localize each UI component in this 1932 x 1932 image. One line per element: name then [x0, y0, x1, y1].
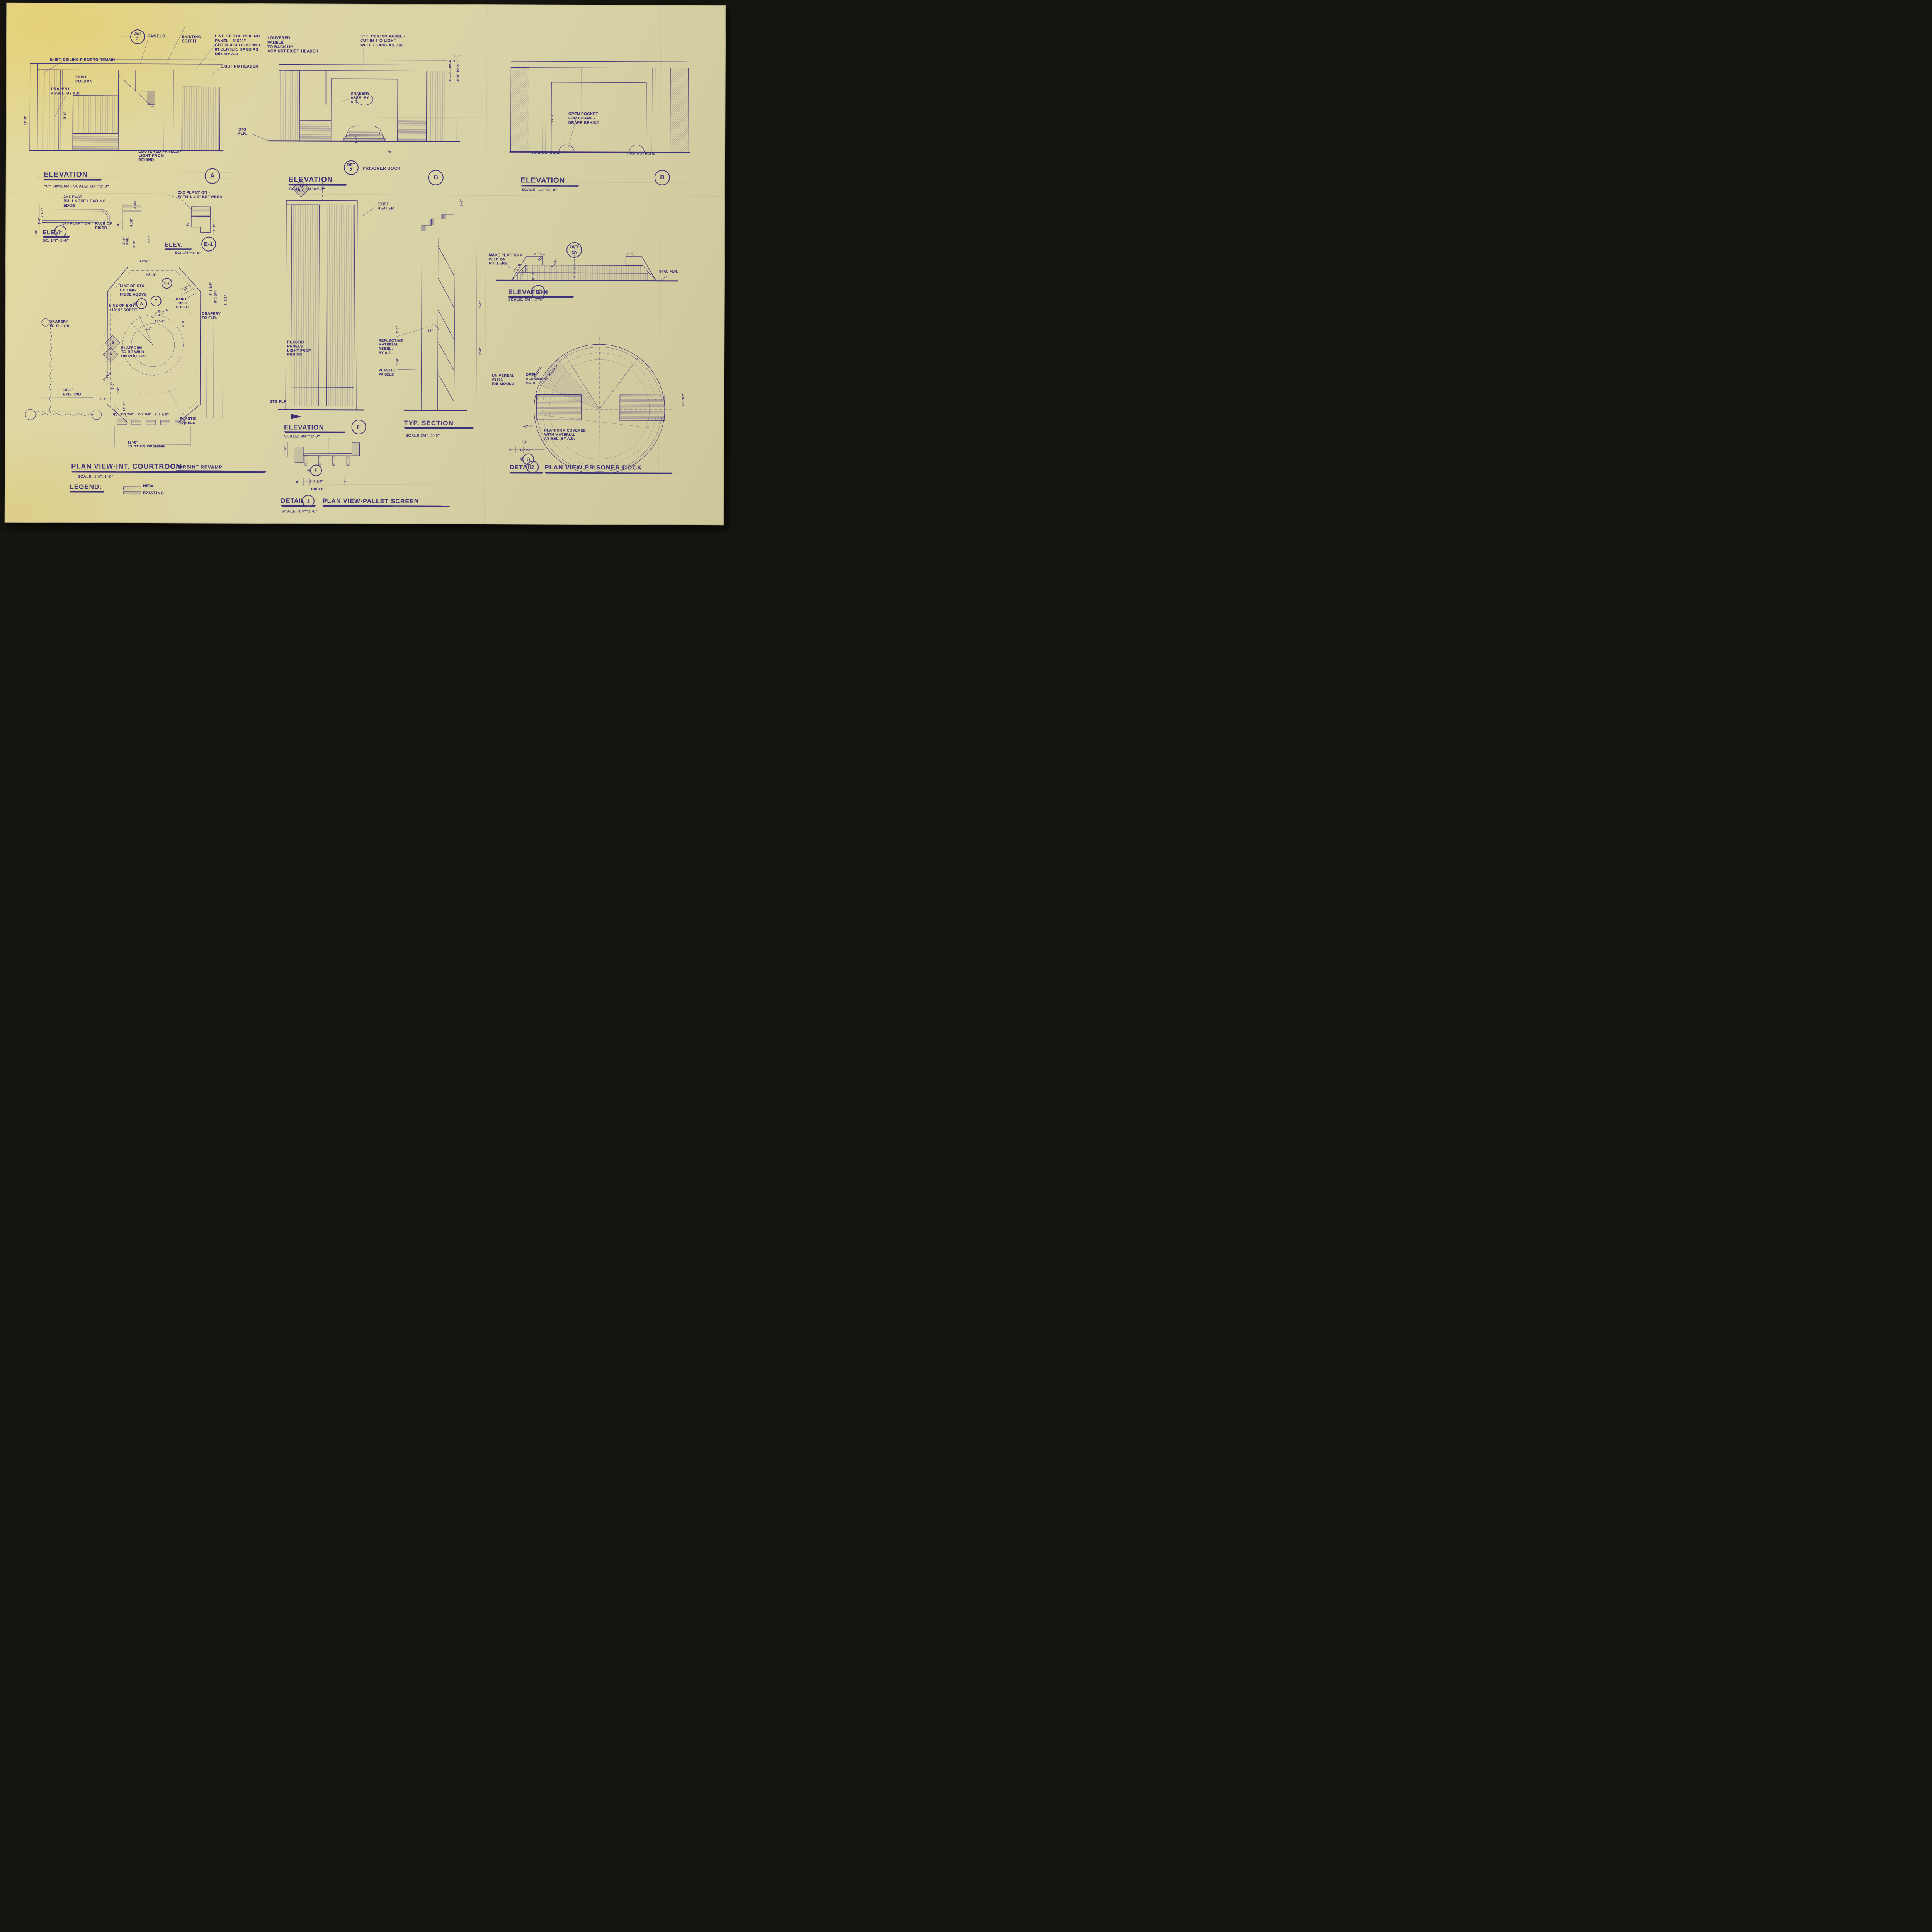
blueprint-sheet: ELEVATION"C" SIMILAR - SCALE: 1/4"=1'-0"… — [5, 3, 726, 525]
photo-backdrop: ELEVATION"C" SIMILAR - SCALE: 1/4"=1'-0"… — [0, 0, 731, 532]
legend-heading: LEGEND: — [70, 483, 104, 492]
legend: LEGEND: NEW EXISTING — [5, 3, 726, 525]
legend-existing-label: EXISTING — [143, 491, 164, 496]
legend-new-label: NEW — [143, 484, 153, 489]
